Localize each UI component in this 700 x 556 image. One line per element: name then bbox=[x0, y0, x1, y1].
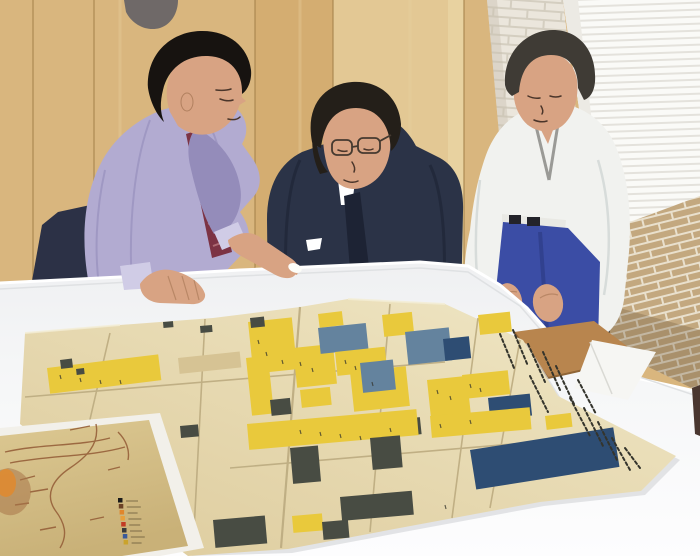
map-block-dark bbox=[213, 515, 267, 547]
map-block-dark bbox=[270, 398, 292, 416]
map-block-bluegrey bbox=[360, 360, 396, 393]
map-block-dark bbox=[60, 359, 73, 369]
map-block-yellow bbox=[318, 311, 344, 328]
legend-swatch bbox=[118, 498, 123, 503]
legend-swatch bbox=[119, 504, 124, 509]
map-block-dark bbox=[322, 520, 349, 540]
map-block-dark bbox=[163, 321, 173, 328]
scene-canvas bbox=[0, 0, 700, 556]
map-block-bluegrey bbox=[318, 323, 368, 354]
waist-knot bbox=[509, 215, 521, 224]
map-block-dark bbox=[250, 317, 265, 328]
photo-three-men-examining-antique-maps bbox=[0, 0, 700, 556]
map-block-dark bbox=[180, 424, 199, 438]
legend-swatch bbox=[121, 522, 126, 527]
legend-swatch bbox=[124, 540, 129, 545]
legend-swatch bbox=[120, 516, 125, 521]
pocket-square bbox=[306, 238, 322, 251]
ear bbox=[181, 93, 193, 111]
map-block-yellow bbox=[292, 513, 323, 533]
waist-knot2 bbox=[527, 217, 540, 226]
map-block-yellow bbox=[478, 312, 512, 335]
map-block-dark bbox=[200, 325, 213, 333]
map-block-dark bbox=[370, 435, 403, 469]
legend-swatch bbox=[120, 510, 125, 515]
legend-swatch bbox=[123, 534, 128, 539]
map-block-yellow bbox=[462, 370, 510, 399]
map-block-navy bbox=[443, 336, 471, 361]
map-block-yellow bbox=[300, 387, 332, 408]
map-block-dark bbox=[290, 446, 321, 484]
legend-swatch bbox=[122, 528, 127, 533]
map-block-dark bbox=[76, 368, 85, 375]
